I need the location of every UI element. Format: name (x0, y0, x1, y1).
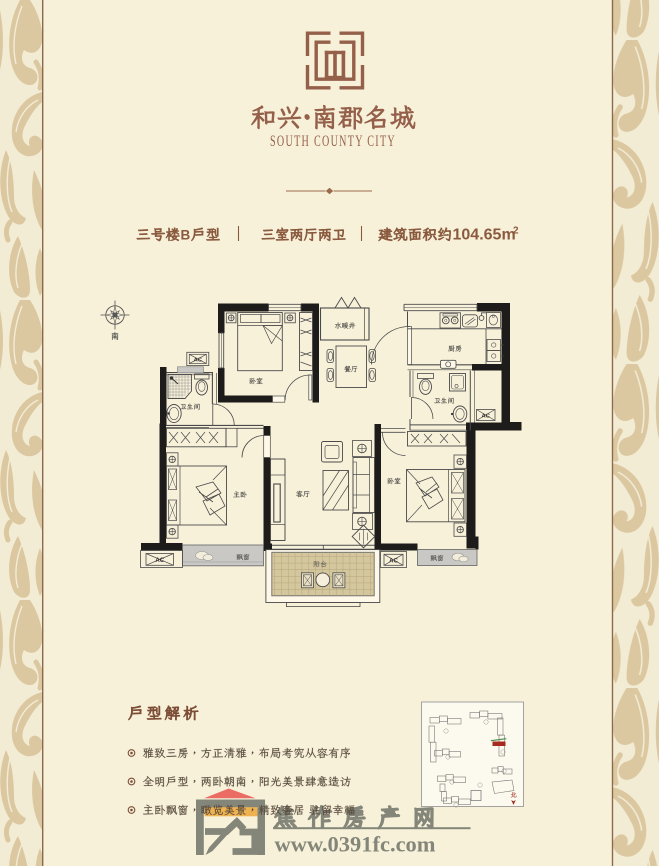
svg-text:AC: AC (155, 558, 164, 564)
svg-text:SOUTH COUNTY CITY: SOUTH COUNTY CITY (270, 133, 396, 150)
svg-text:AC: AC (389, 559, 398, 565)
svg-text:2: 2 (513, 226, 519, 237)
svg-text:AC: AC (482, 414, 491, 420)
svg-text:AC: AC (194, 358, 203, 364)
svg-text:www.0391fc.com: www.0391fc.com (275, 832, 436, 857)
svg-text:104.65m: 104.65m (453, 227, 516, 244)
svg-text:B: B (181, 228, 191, 243)
